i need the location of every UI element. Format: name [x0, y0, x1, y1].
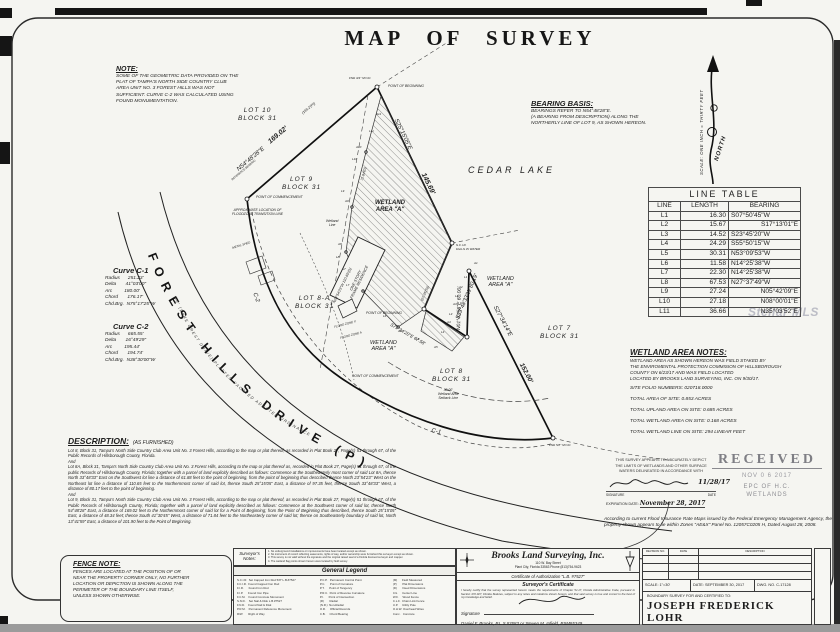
line-length: 36.66 [681, 307, 729, 317]
revision-date-header: DATE [669, 549, 699, 555]
note-block: NOTE: SOME OF THE GEOMETRIC DATA PROVIDE… [116, 66, 276, 105]
date-cell: DATE: SEPTEMBER 30, 2017 [691, 580, 755, 591]
line-length: 67.53 [681, 278, 729, 288]
line-length: 14.52 [681, 230, 729, 240]
wetland-notes-stats: SITE FOLIO NUMBERS: 020718.0000 TOTAL AR… [630, 386, 830, 436]
revision-desc-header: DESCRIPTION [699, 549, 811, 555]
flag-l3: L3 [449, 313, 452, 317]
line-table-row: L314.52S23°45'20"W [649, 230, 801, 240]
flag-a2: A2 [459, 286, 463, 290]
line-id: L8 [649, 278, 681, 288]
curve-c2-title: Curve C-2 [113, 322, 215, 331]
map-label-wetland-a2: WETLAND AREA "A" [487, 276, 514, 289]
line-length: 30.31 [681, 249, 729, 259]
signature-label: SIGNATURE [606, 493, 624, 497]
map-label-fnd58: FND 5/8" NO ID [549, 444, 570, 448]
revision-no-header: REVISION NO. [643, 549, 669, 555]
certified-to-name: JOSEPH FREDERICK LOHR [647, 600, 807, 624]
compass-rose-icon [460, 553, 474, 567]
fence-note-heading: FENCE NOTE: [73, 561, 231, 568]
map-label-lot9: LOT 9 BLOCK 31 [282, 176, 321, 191]
map-label-fnd34: FND 3/4" NO ID [349, 77, 370, 81]
received-stamp-org: EPC OF H.C. [712, 484, 822, 490]
line-bearing: N08°00'01"E [729, 297, 801, 307]
line-bearing: N53°09'53"W [729, 249, 801, 259]
line-id: L1 [649, 211, 681, 221]
received-stamp-date: NOV 0 6 2017 [712, 473, 822, 479]
firm-signature-row: Signature [457, 600, 639, 620]
line-bearing: N35°03'52"E [729, 307, 801, 317]
line-table-row: L722.30N14°25'38"W [649, 269, 801, 279]
received-stamp-dept: WETLANDS [712, 492, 822, 498]
line-id: L2 [649, 221, 681, 231]
revision-table: REVISION NO. DATE DESCRIPTION [642, 548, 812, 580]
line-table-row: L927.24N05°42'09"E [649, 288, 801, 298]
general-legend-columns: S.C.I.R. Set Capped Iron Rod 5/8" L.B.#7… [234, 576, 455, 618]
curve-c1-title: Curve C-1 [113, 266, 215, 275]
flag-l7: L7 [346, 284, 349, 288]
dashed-extension-e [452, 230, 520, 243]
firm-signers: Daniel F. Brooks, P.L.S.#3583 or Steven … [457, 620, 639, 627]
line-id: L4 [649, 240, 681, 250]
line-bearing: N14°25'38"W [729, 269, 801, 279]
description-block: DESCRIPTION: (AS FURNISHED) Lot 8, Block… [68, 436, 396, 524]
flag-l10: L10 [352, 158, 357, 162]
firm-address2: Plant City, Florida 33563 Phone (813)754… [457, 565, 639, 569]
flag-l1: L1 [464, 276, 467, 280]
flag-a4: A4 [447, 321, 451, 325]
map-label-pob-1: POINT OF BEGINNING [388, 84, 424, 88]
curve-c2-body: Radius 665.55' Delta 16°49'29" Arc 195.4… [105, 332, 215, 364]
line-length: 16.30 [681, 211, 729, 221]
flag-l9: L9 [341, 190, 344, 194]
line-table-row: L116.30S07°50'45"W [649, 211, 801, 221]
wetland-notes-heading: WETLAND AREA NOTES: [630, 348, 830, 357]
line-id: L10 [649, 297, 681, 307]
firm-signature-label: Signature [461, 611, 480, 616]
line-bearing: S23°45'20"W [729, 230, 801, 240]
signature-area: 11/28/17 [606, 475, 716, 491]
certified-to-label: BOUNDARY SURVEY FOR AND CERTIFIED TO: [647, 594, 807, 598]
flag-a11: A11 [376, 113, 381, 117]
line-table: LINE TABLE LINE LENGTH BEARING L116.30S0… [648, 187, 801, 317]
flag-l11: L11 [369, 130, 374, 134]
flag-a3: A3 [453, 303, 457, 307]
fence-note-body: FENCES ARE LOCATED AT THE POSITION OF OR… [73, 569, 231, 599]
line-table-row: L1136.66N35°03'52"E [649, 307, 801, 317]
map-label-cedar-lake: CEDAR LAKE [468, 165, 555, 176]
general-legend-title: General Legend [234, 567, 455, 576]
bearing-basis-block: BEARING BASIS: BEARINGS REFER TO N54°48'… [531, 99, 681, 128]
line-length: 15.67 [681, 221, 729, 231]
fence-note-box: FENCE NOTE: FENCES ARE LOCATED AT THE PO… [60, 555, 232, 622]
bearing-basis-heading: BEARING BASIS: [531, 99, 681, 108]
description-subheading: (AS FURNISHED) [133, 440, 174, 446]
survey-sheet: FOREST HILLS DRIVE (P) 60' (LAKE CREST D… [0, 0, 840, 632]
map-label-wetland-a: WETLAND AREA "A" [375, 200, 405, 214]
line-length: 11.58 [681, 259, 729, 269]
map-label-approx-floodzone: APPROXIMATE LOCATION OF FLOODZONE TRANSI… [232, 208, 283, 216]
firm-signature-scribble [517, 594, 587, 608]
map-label-lot8: LOT 8 BLOCK 31 [432, 368, 471, 383]
map-label-poc-2: POINT OF COMMENCEMENT [352, 374, 399, 378]
north-arrow-icon [707, 55, 719, 184]
signature-labels-row: SIGNATURE DATE [606, 491, 716, 497]
line-bearing: N05°42'09"E [729, 288, 801, 298]
legend-col-2: P.C.P. Permanent Control Point P.C. Poin… [320, 578, 389, 616]
line-table-row: L611.58N14°25'38"W [649, 259, 801, 269]
flag-l6: L6 [383, 315, 386, 319]
line-length: 24.29 [681, 240, 729, 250]
plumb-bob-icon [624, 551, 636, 571]
note-body: SOME OF THE GEOMETRIC DATA PROVIDED ON T… [116, 74, 276, 105]
line-id: L7 [649, 269, 681, 279]
line-table-row: L530.31N53°09'53"W [649, 249, 801, 259]
bearing-basis-body: BEARINGS REFER TO N54°48'28"E. (A BEARIN… [531, 109, 681, 128]
line-table-row: L1027.18N08°00'01"E [649, 297, 801, 307]
revision-header-row: REVISION NO. DATE DESCRIPTION [643, 549, 811, 556]
line-length: 27.24 [681, 288, 729, 298]
certification-block: THIS SURVEY APPEARS TO ACCURATELY DEPICT… [606, 458, 716, 507]
curve-c1-body: Radius 251.23' Delta 41°03'00" Arc 180.0… [105, 276, 215, 308]
revision-empty-row [643, 564, 811, 572]
flag-a10: A10 [356, 146, 361, 150]
line-table-header-line: LINE [649, 202, 681, 212]
line-bearing: N27°37'49"W [729, 278, 801, 288]
scale-cell: SCALE: 1"=30' [643, 580, 691, 591]
wetland-notes-block: WETLAND AREA NOTES: WETLAND AREA AS SHOW… [630, 348, 830, 436]
map-label-scir-water: S.C.I.R. FALLS IN WATER [456, 244, 480, 251]
map-label-setback: 30.00' Wetland Area Setback Line [438, 388, 458, 400]
map-label-lot10: LOT 10 BLOCK 31 [238, 107, 277, 122]
firm-box: Brooks Land Surveying, Inc. 110 W. Bay S… [456, 548, 640, 625]
title-band-right-strip [814, 548, 831, 625]
expiration-row: EXPIRATION DATE: November 28, 2017 [606, 500, 716, 507]
description-heading-row: DESCRIPTION: (AS FURNISHED) [68, 436, 396, 446]
line-table-header-bearing: BEARING [729, 202, 801, 212]
flag-a9: A9 [345, 200, 349, 204]
firm-header: Brooks Land Surveying, Inc. 110 W. Bay S… [457, 549, 639, 573]
flag-a5: A5 [434, 346, 438, 350]
dashed-lot7-line [553, 438, 672, 460]
wetland-notes-body: WETLAND AREA AS SHOWN HEREON WAS FIELD S… [630, 358, 830, 382]
line-table-row: L867.53N27°37'49"W [649, 278, 801, 288]
surveyor-notes-box: Surveyor's Notes: 1. No underground inst… [233, 548, 456, 566]
legend-col-3: (M) Field Measured (P) Plat Dimensions (… [393, 578, 452, 616]
map-label-poc-1: POINT OF COMMENCEMENT [256, 195, 303, 199]
line-bearing: S55°50'15"W [729, 240, 801, 250]
line-id: L5 [649, 249, 681, 259]
line-bearing: N14°25'38"W [729, 259, 801, 269]
flag-l8: L8 [336, 256, 339, 260]
line-length: 22.30 [681, 269, 729, 279]
map-label-lot8a: LOT 8-A BLOCK 31 [295, 295, 334, 310]
certification-body: THIS SURVEY APPEARS TO ACCURATELY DEPICT… [606, 458, 716, 475]
metal-shed-footprint-2 [258, 271, 275, 285]
page-title: MAP OF SURVEY [310, 26, 630, 51]
line-table-title: LINE TABLE [649, 188, 801, 202]
firm-name: Brooks Land Surveying, Inc. [457, 549, 639, 561]
line-table-row: L424.29S55°50'15"W [649, 240, 801, 250]
surveyor-notes-body: 1. No underground installations or impro… [266, 549, 455, 565]
legend-col-1: S.C.I.R. Set Capped Iron Rod 5/8" L.B.#7… [237, 578, 316, 616]
description-para3: Lot 9, Block 31, Tampa's North Side Coun… [68, 497, 396, 524]
map-label-wetland-line: Wetland Line [326, 219, 338, 227]
description-para2: Lot 8A, Block 31, Tampa's North Side Cou… [68, 464, 396, 491]
line-id: L11 [649, 307, 681, 317]
flood-note: According to current Flood Insurance Rat… [604, 516, 832, 529]
certified-to-box: BOUNDARY SURVEY FOR AND CERTIFIED TO: JO… [642, 591, 812, 625]
general-legend-box: General Legend S.C.I.R. Set Capped Iron … [233, 566, 456, 625]
line-table-row: L215.67S17°13'01"E [649, 221, 801, 231]
line-bearing: S07°50'45"W [729, 211, 801, 221]
received-stamp-title: RECEIVED [712, 452, 822, 469]
revision-empty-row [643, 556, 811, 564]
flag-l5: L5 [416, 338, 419, 342]
received-stamp: RECEIVED NOV 0 6 2017 EPC OF H.C. WETLAN… [712, 452, 822, 498]
line-table-header-length: LENGTH [681, 202, 729, 212]
curve-c1-block: Curve C-1 Radius 251.23' Delta 41°03'00"… [105, 266, 215, 308]
line-bearing: S17°13'01"E [729, 221, 801, 231]
surveyor-notes-label: Surveyor's Notes: [234, 549, 266, 565]
map-label-wetland-a3: WETLAND AREA "A" [370, 340, 397, 353]
line-id: L3 [649, 230, 681, 240]
line-id: L9 [649, 288, 681, 298]
dwg-no-cell: DWG. NO. C-17128 [755, 580, 811, 591]
line-id: L6 [649, 259, 681, 269]
description-heading: DESCRIPTION: [68, 436, 129, 446]
flag-a6: A6 [398, 330, 402, 334]
north-scale-label: SCALE: ONE INCH = THIRTY FEET [700, 89, 705, 175]
expiration-value-hand: November 28, 2017 [640, 500, 706, 508]
flag-a7: A7 [342, 268, 346, 272]
flag-l2: L2 [455, 295, 458, 299]
description-para1: Lot 8, Block 31, Tampa's North Side Coun… [68, 448, 396, 459]
firm-authorization: Certificate of Authorization "L.B. #7527… [457, 573, 639, 581]
flag-a8: A8 [338, 243, 342, 247]
map-label-lot7: LOT 7 BLOCK 31 [540, 325, 579, 340]
note-heading: NOTE: [116, 66, 276, 73]
flag-l4: L4 [441, 331, 444, 335]
expiration-label: EXPIRATION DATE: [606, 502, 639, 506]
curve-c2-block: Curve C-2 Radius 665.55' Delta 16°49'29"… [105, 322, 215, 364]
line-length: 27.18 [681, 297, 729, 307]
flag-a1: A1 [474, 262, 478, 266]
